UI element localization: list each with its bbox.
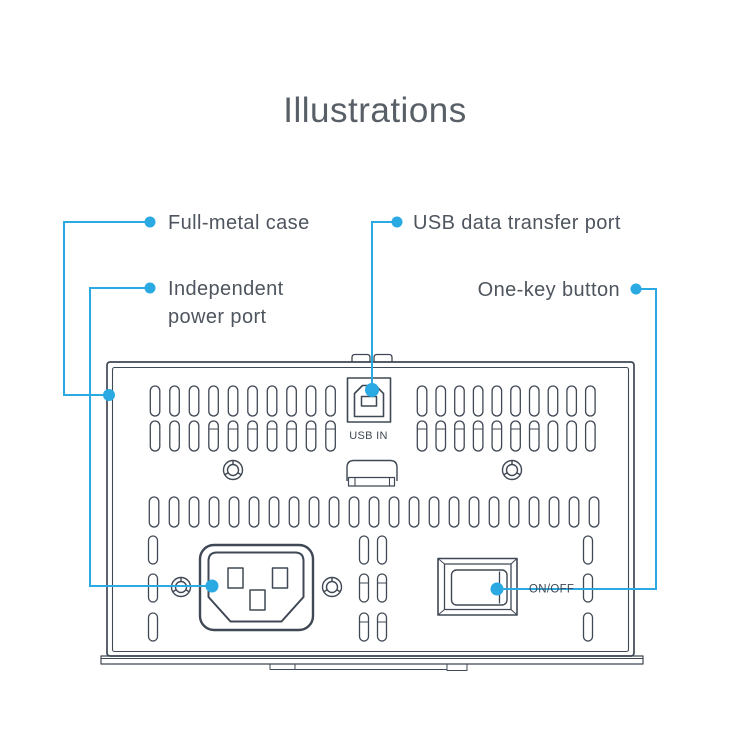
illustration-canvas: Full-metal case USB data transfer port I… [0,0,750,750]
on-off-label: ON/OFF [529,584,574,596]
stand-clip [347,461,397,487]
dot-usb-label [392,217,403,228]
vent-slots [149,386,599,641]
screw-icon [323,578,342,597]
case-outline [101,355,643,671]
dot-one-key-target [491,583,504,596]
dot-one-key-label [631,284,642,295]
dot-full-metal-target [103,389,115,401]
leader-independent-power [90,288,212,586]
usb-in-label: USB IN [349,430,387,442]
leader-usb-port [372,222,397,390]
label-independent-line2: power port [168,306,267,328]
dot-usb-target [365,383,379,397]
label-independent-line1: Independent [168,278,284,300]
power-switch [438,559,517,616]
dot-full-metal-label [145,217,156,228]
label-one-key-button: One-key button [478,279,620,301]
dot-independent-label [145,283,156,294]
label-usb-data-transfer-port: USB data transfer port [413,212,621,234]
screw-icon [503,461,522,480]
illustration-page: Illustrations [0,0,750,750]
device-back-panel [101,355,643,671]
screw-icon [224,461,243,480]
label-full-metal-case: Full-metal case [168,212,310,234]
callout-labels: Full-metal case USB data transfer port I… [168,212,621,328]
dot-independent-target [206,580,219,593]
